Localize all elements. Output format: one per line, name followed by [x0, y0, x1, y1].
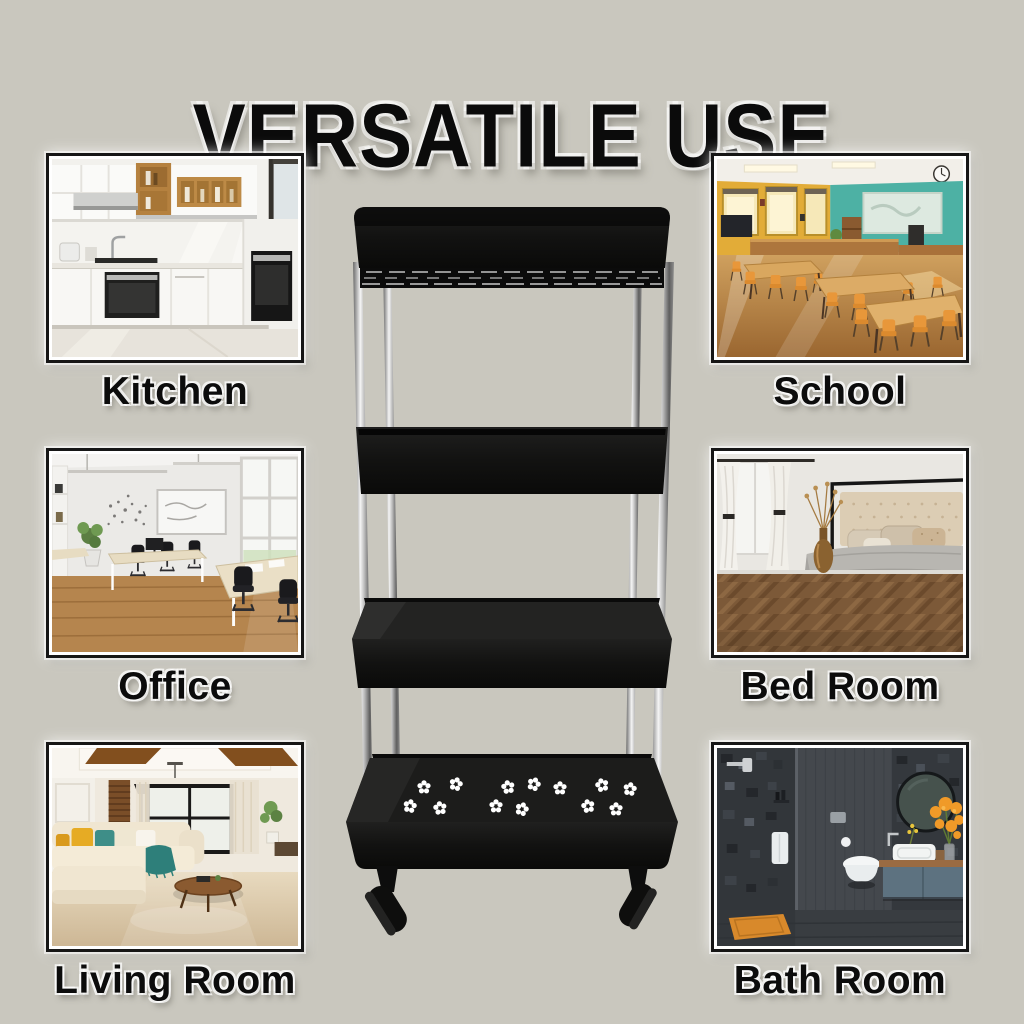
room-card-living-room: Living Room [46, 742, 304, 1003]
four-tier-cart [336, 202, 688, 947]
school-photo [717, 159, 963, 357]
photo-frame [711, 448, 969, 658]
living-room-photo [52, 748, 298, 946]
product-image-rolling-cart [336, 202, 688, 947]
photo-frame [46, 742, 304, 952]
photo-frame [711, 153, 969, 363]
photo-frame [46, 448, 304, 658]
office-photo [52, 454, 298, 652]
photo-frame [46, 153, 304, 363]
room-label-bedroom: Bed Room [711, 665, 969, 709]
tier-4-basket [346, 822, 678, 869]
photo-frame [711, 742, 969, 952]
bathroom-photo [717, 748, 963, 946]
shower-head [742, 758, 752, 772]
room-label-school: School [711, 370, 969, 414]
vanity-countertop [879, 860, 963, 867]
caster-wheel-left [363, 866, 412, 937]
flush-plate [830, 812, 846, 823]
poster: VERSATILE USE [0, 0, 1024, 1024]
bedroom-photo [717, 454, 963, 652]
room-card-bedroom: Bed Room [711, 448, 969, 709]
room-card-office: Office [46, 448, 304, 709]
tier-3-basket [352, 639, 672, 688]
room-label-office: Office [46, 665, 304, 709]
room-card-school: School [711, 153, 969, 414]
tier-2-basket [356, 427, 668, 494]
room-label-kitchen: Kitchen [46, 370, 304, 414]
room-label-living-room: Living Room [46, 959, 304, 1003]
vessel-sink [893, 844, 936, 862]
caster-wheel-right [615, 866, 659, 931]
room-card-bathroom: Bath Room [711, 742, 969, 1003]
room-label-bathroom: Bath Room [711, 959, 969, 1003]
room-card-kitchen: Kitchen [46, 153, 304, 414]
kitchen-photo [52, 159, 298, 357]
toilet-paper [841, 837, 851, 847]
